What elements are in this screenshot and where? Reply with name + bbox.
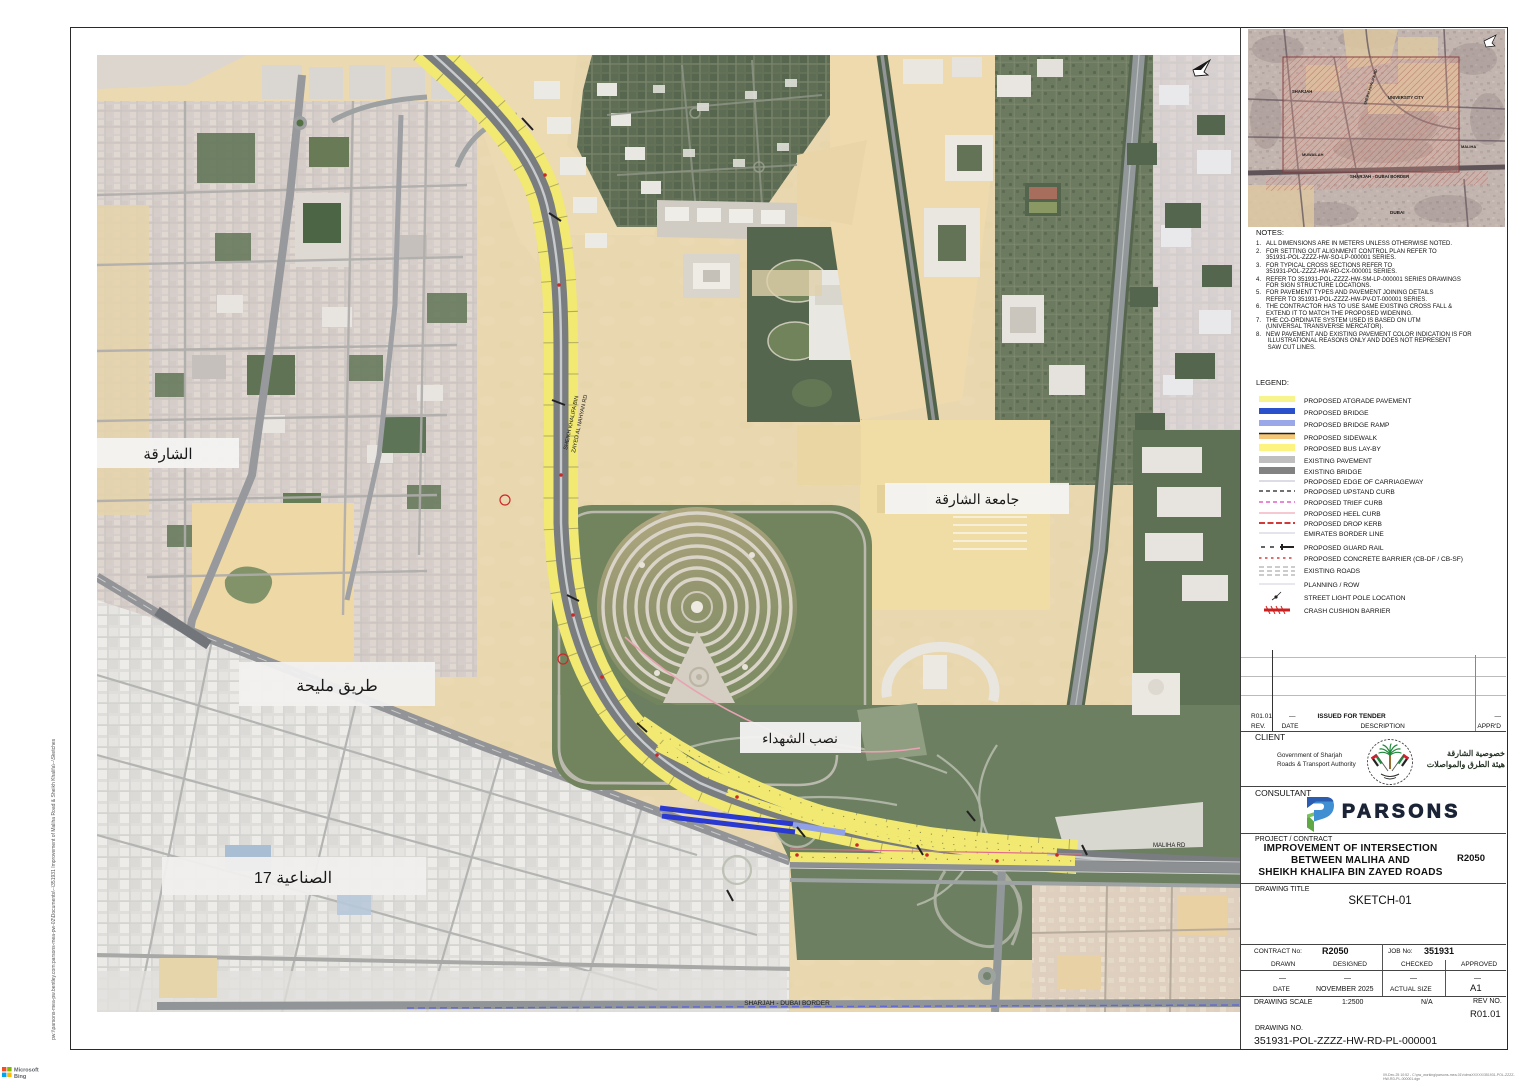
- svg-text:STREET LIGHT POLE LOCATION: STREET LIGHT POLE LOCATION: [1304, 595, 1406, 602]
- svg-text:PROPOSED BUS LAY-BY: PROPOSED BUS LAY-BY: [1304, 446, 1382, 453]
- svg-text:MALIHA: MALIHA: [1461, 144, 1476, 149]
- svg-text:PROPOSED EDGE OF CARRIAGEWAY: PROPOSED EDGE OF CARRIAGEWAY: [1304, 479, 1424, 486]
- svg-text:Bing: Bing: [14, 1074, 26, 1080]
- svg-text:SHARJAH - DUBAI BORDER: SHARJAH - DUBAI BORDER: [1350, 174, 1410, 179]
- svg-text:PROPOSED TRIEF CURB: PROPOSED TRIEF CURB: [1304, 500, 1383, 507]
- svg-text:PROPOSED SIDEWALK: PROPOSED SIDEWALK: [1304, 435, 1378, 442]
- svg-text:PROPOSED ATGRADE PAVEMENT: PROPOSED ATGRADE PAVEMENT: [1304, 398, 1411, 405]
- svg-text:Microsoft: Microsoft: [14, 1068, 39, 1074]
- svg-text:EMIRATES BORDER LINE: EMIRATES BORDER LINE: [1304, 531, 1384, 538]
- svg-text:DUBAI: DUBAI: [1390, 210, 1405, 215]
- svg-text:SHARJAH: SHARJAH: [1292, 89, 1312, 94]
- svg-text:MUWAILAH: MUWAILAH: [1302, 152, 1324, 157]
- svg-text:UNIVERSITY CITY: UNIVERSITY CITY: [1388, 95, 1424, 100]
- svg-text:PLANNING / ROW: PLANNING / ROW: [1304, 582, 1360, 589]
- svg-text:PROPOSED CONCRETE BARRIER (CB-: PROPOSED CONCRETE BARRIER (CB-DF / CB-SF…: [1304, 556, 1463, 563]
- svg-text:EXISTING BRIDGE: EXISTING BRIDGE: [1304, 469, 1362, 476]
- svg-text:EXISTING PAVEMENT: EXISTING PAVEMENT: [1304, 458, 1372, 465]
- svg-text:PROPOSED UPSTAND CURB: PROPOSED UPSTAND CURB: [1304, 489, 1395, 496]
- svg-text:PROPOSED BRIDGE RAMP: PROPOSED BRIDGE RAMP: [1304, 422, 1390, 429]
- svg-text:EXISTING ROADS: EXISTING ROADS: [1304, 568, 1361, 575]
- svg-text:PROPOSED HEEL CURB: PROPOSED HEEL CURB: [1304, 511, 1381, 518]
- svg-text:CRASH CUSHION BARRIER: CRASH CUSHION BARRIER: [1304, 608, 1391, 614]
- svg-text:PROPOSED DROP KERB: PROPOSED DROP KERB: [1304, 521, 1383, 528]
- svg-text:PROPOSED GUARD RAIL: PROPOSED GUARD RAIL: [1304, 545, 1384, 552]
- svg-text:PROPOSED BRIDGE: PROPOSED BRIDGE: [1304, 410, 1369, 417]
- svg-text:PARSONS: PARSONS: [1342, 801, 1461, 823]
